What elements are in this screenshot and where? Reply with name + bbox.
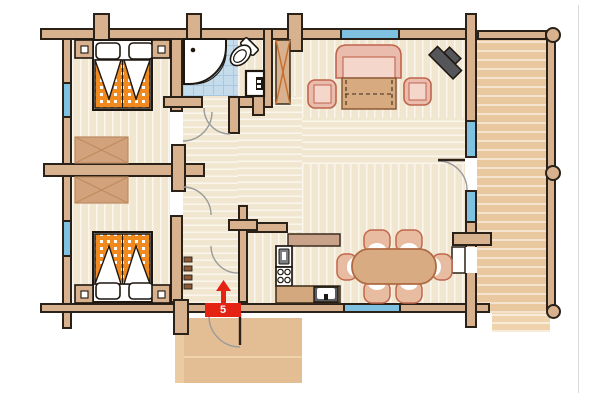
armchair-right [404, 78, 431, 105]
shower-drain [191, 48, 196, 53]
arc-bedroom1-door [183, 112, 212, 141]
kitchen-sink [314, 287, 338, 302]
kitchen-upper-counter [288, 234, 340, 246]
page-edge-line [578, 5, 579, 393]
dining-door-leaf [452, 247, 465, 273]
corner-shower [184, 39, 226, 84]
furniture-layer [0, 0, 600, 400]
stove [276, 267, 292, 286]
floor-plan-canvas: 5 [0, 0, 600, 400]
bed-2 [93, 232, 153, 302]
washbasin [246, 71, 264, 96]
wardrobe-bedroom2 [75, 177, 128, 203]
bed-1 [93, 40, 153, 110]
wardrobe-bedroom1 [75, 137, 128, 163]
tv [429, 41, 467, 79]
toilet [226, 37, 259, 70]
sofa [336, 45, 401, 78]
coat-hooks [184, 257, 192, 289]
arc-entrance-door [209, 316, 240, 347]
dining-table [352, 249, 436, 284]
arc-bedroom2-door [183, 187, 211, 215]
pillow [129, 283, 153, 299]
tall-cabinet [276, 40, 290, 104]
arc-terrace-door [438, 161, 467, 190]
oven [276, 246, 292, 267]
entrance-number: 5 [220, 304, 226, 316]
arc-bathroom-door [204, 108, 230, 134]
entrance-marker: 5 [205, 303, 241, 317]
entrance-arrow [208, 279, 238, 303]
pillow [96, 283, 120, 299]
pillow [96, 43, 120, 59]
arc-kitchen-door [211, 246, 238, 273]
armchair-left [308, 80, 336, 108]
pillow [129, 43, 153, 59]
coffee-table [342, 78, 396, 109]
